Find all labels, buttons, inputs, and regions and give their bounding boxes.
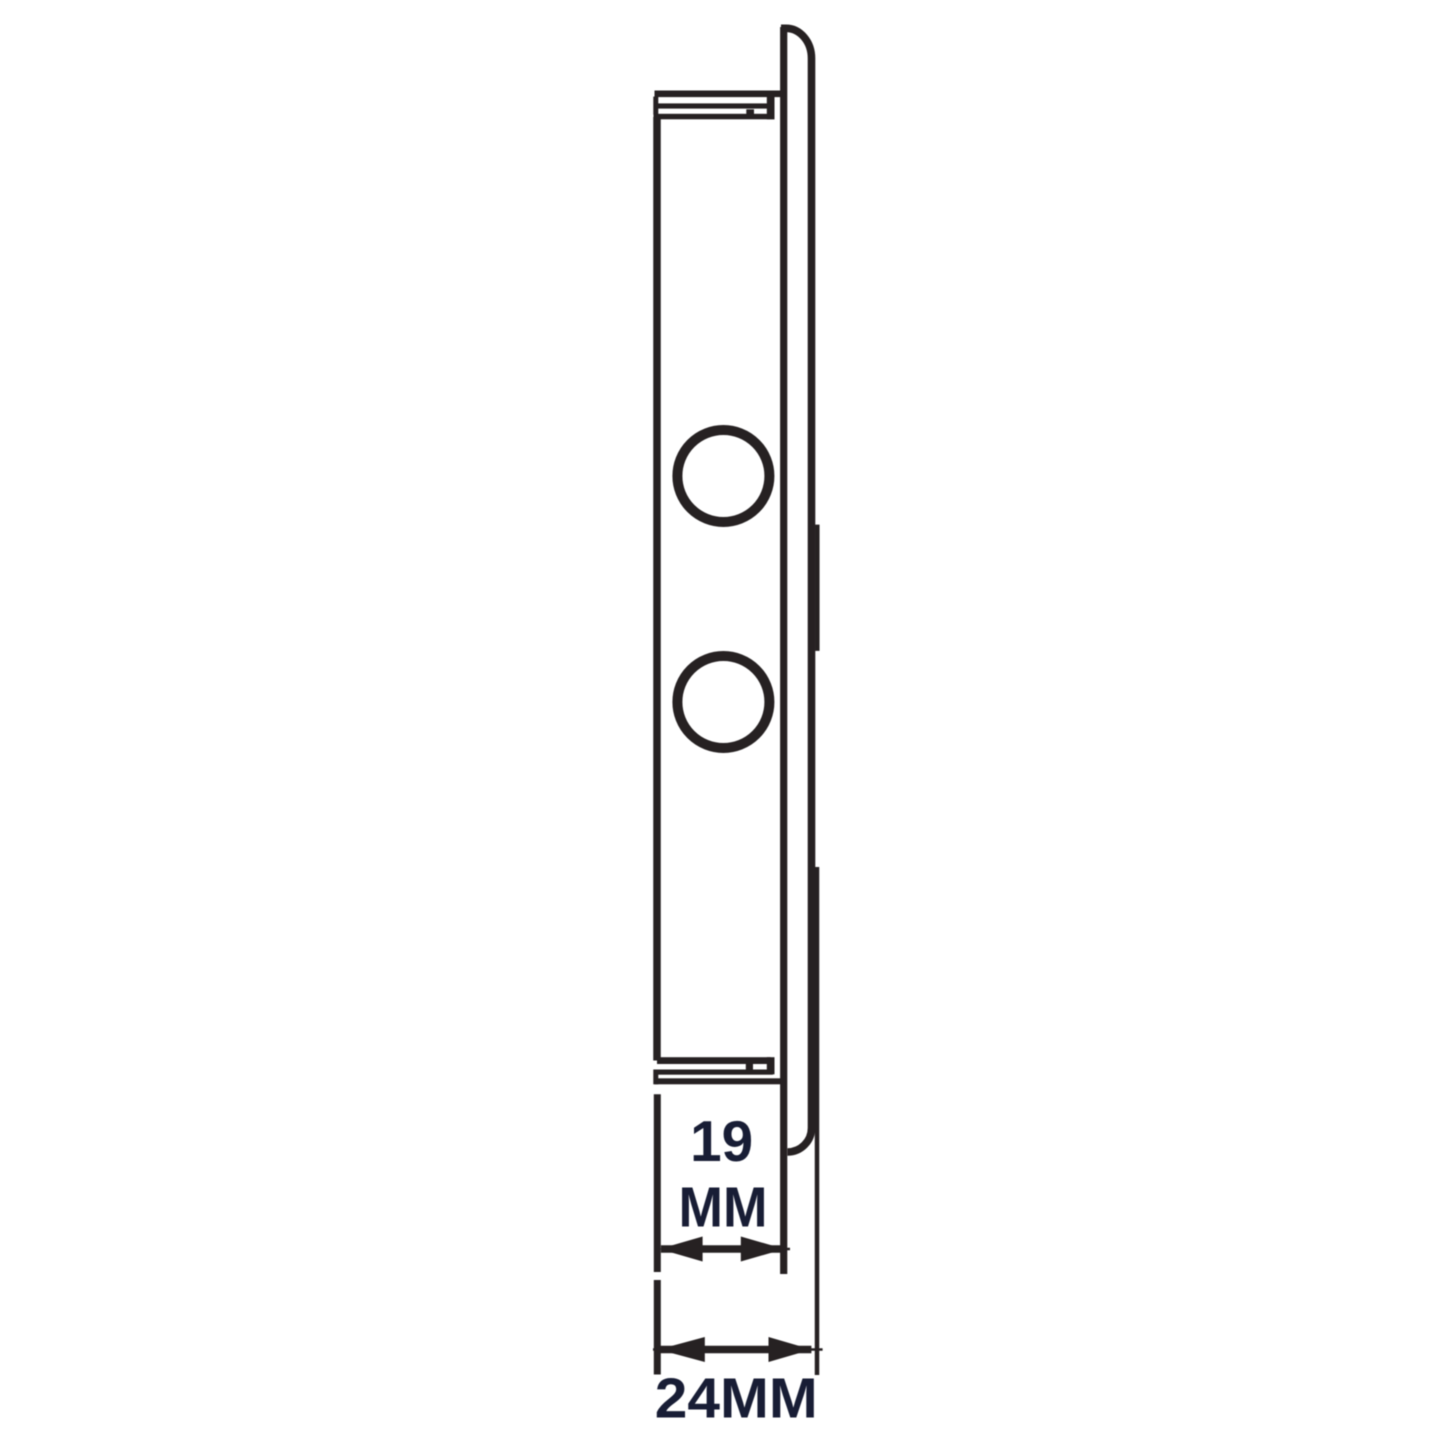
svg-text:24MM: 24MM — [655, 1367, 818, 1430]
svg-text:MM: MM — [679, 1175, 768, 1239]
svg-text:19: 19 — [690, 1110, 753, 1174]
